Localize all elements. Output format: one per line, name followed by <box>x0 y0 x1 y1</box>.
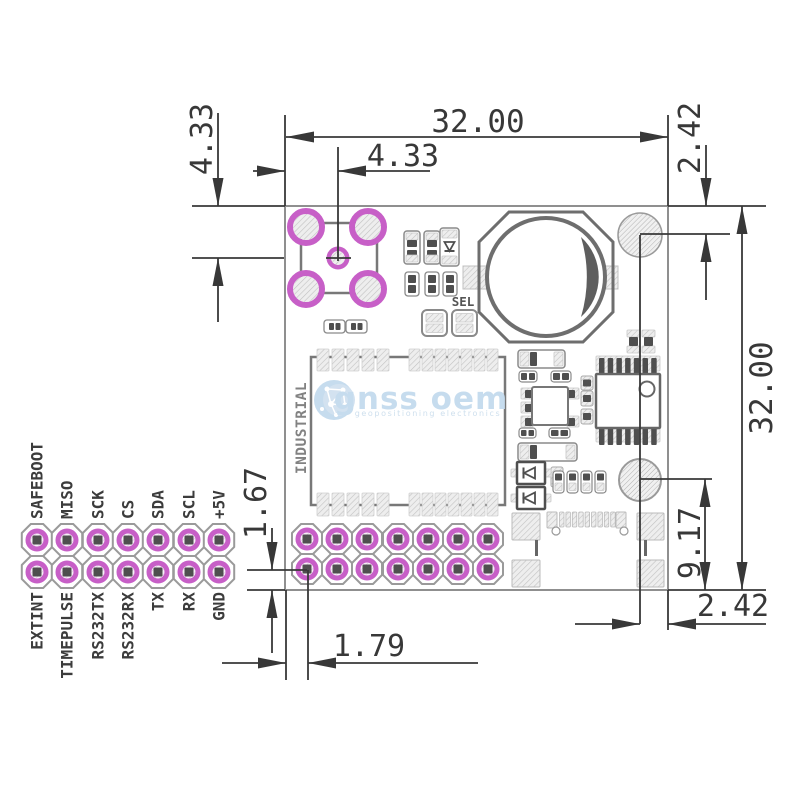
component-terminal <box>529 373 535 380</box>
component-terminal <box>583 413 591 420</box>
usb-shield-pad <box>616 512 626 528</box>
component-terminal <box>643 428 649 445</box>
component-pad <box>406 233 418 240</box>
header-pin-post <box>94 536 103 545</box>
gnss-module-outline <box>311 357 505 505</box>
header-pin-post <box>424 565 433 574</box>
component-terminal <box>625 358 631 375</box>
module-pad <box>422 349 433 371</box>
usb-locator-hole <box>552 527 560 535</box>
component-terminal <box>569 474 576 481</box>
component-terminal <box>521 430 527 436</box>
component-pad <box>456 324 473 333</box>
usb-signal-pad <box>585 512 590 527</box>
pin-label-top: SCL <box>180 490 199 519</box>
pin-label-bottom: RS232RX <box>119 592 138 660</box>
component-terminal <box>530 445 537 459</box>
component-terminal <box>644 337 653 346</box>
usb-signal-pad <box>604 512 609 527</box>
header-pin-post <box>484 565 493 574</box>
dim-hole-bottom-height: 9.17 <box>673 507 708 579</box>
component-terminal <box>599 428 605 445</box>
component-terminal <box>629 337 638 346</box>
component-pad <box>642 330 655 337</box>
module-pad <box>487 349 498 371</box>
header-pin-post <box>154 568 163 577</box>
dimension-arrow <box>701 234 712 262</box>
soic-pin1-marker <box>640 382 655 397</box>
header-pin-post <box>363 535 372 544</box>
antenna-pad-hole <box>293 214 319 240</box>
dim-antenna-x: 4.33 <box>367 139 439 174</box>
dim-board-width: 32.00 <box>431 104 524 140</box>
drawing-canvas: INDUSTRIAL SEL gnss oem geopositioning e… <box>0 0 800 800</box>
component-terminal <box>599 358 605 375</box>
component-pad <box>426 314 443 323</box>
dimension-arrow <box>286 132 314 143</box>
header-pin-post <box>394 565 403 574</box>
component-terminal <box>428 275 436 283</box>
component-terminal <box>407 240 417 247</box>
header-pin-post <box>94 568 103 577</box>
component-pad <box>597 483 604 491</box>
pin-label-bottom: EXTINT <box>28 592 47 650</box>
usb-shield-pad <box>512 513 540 540</box>
usb-signal-pad <box>592 512 597 527</box>
component-pad <box>627 346 640 353</box>
component-terminal <box>551 430 559 436</box>
component-outline <box>324 320 345 333</box>
component-pad <box>426 233 438 240</box>
dim-hole-top-offset: 2.42 <box>673 102 708 174</box>
dim-header-col: 1.79 <box>333 629 405 664</box>
component-pad <box>442 256 457 264</box>
module-pad <box>377 349 389 371</box>
dimension-arrow <box>257 166 285 177</box>
usb-signal-pad <box>611 512 616 527</box>
pin-label-bottom: TX <box>149 592 168 612</box>
component-terminal <box>651 428 657 445</box>
dim-hole-bottom-offset: 2.42 <box>697 589 769 624</box>
component-terminal <box>634 428 640 445</box>
component-pad <box>426 255 438 262</box>
component-pad <box>569 483 576 491</box>
module-pad <box>347 493 359 516</box>
component-terminal <box>530 352 537 366</box>
dimension-arrow <box>267 590 278 618</box>
antenna-pad-hole <box>293 276 319 302</box>
header-pin-post <box>215 536 224 545</box>
usb-signal-pad <box>560 512 565 527</box>
watermark-tagline: geopositioning electronics <box>355 409 502 418</box>
dimension-arrow <box>267 542 278 570</box>
module-pad <box>487 493 498 516</box>
component-pad <box>554 352 563 366</box>
component-terminal <box>428 285 436 293</box>
component-pad <box>642 346 655 353</box>
header-pin-post <box>424 535 433 544</box>
header-pin-post <box>63 568 72 577</box>
component-terminal <box>583 395 591 402</box>
dimension-arrow <box>737 206 748 234</box>
component-pad <box>456 314 473 323</box>
sot23-body <box>532 387 568 425</box>
module-pad <box>409 349 420 371</box>
usb-mark <box>644 540 647 556</box>
dimension-arrow <box>700 479 711 507</box>
component-pad <box>442 230 457 238</box>
module-pad <box>435 493 446 516</box>
header-pin-post <box>363 565 372 574</box>
component-terminal <box>608 358 614 375</box>
component-terminal <box>651 358 657 375</box>
module-pad <box>474 493 485 516</box>
diode-body <box>517 462 545 484</box>
module-pad <box>317 493 329 516</box>
pin-label-bottom: RS232TX <box>89 592 108 660</box>
component-terminal <box>427 240 437 247</box>
pin-label-bottom: TIMEPULSE <box>58 592 77 679</box>
component-pad <box>583 483 590 491</box>
dimension-arrow <box>308 658 336 669</box>
component-terminal <box>562 373 569 380</box>
module-pad <box>317 349 329 371</box>
component-terminal <box>561 430 569 436</box>
component-terminal <box>521 373 527 380</box>
component-terminal <box>625 428 631 445</box>
component-terminal <box>446 275 454 283</box>
module-pad <box>461 493 472 516</box>
component-terminal <box>336 323 341 330</box>
header-pin-post <box>454 535 463 544</box>
module-pad <box>347 349 359 371</box>
component-terminal <box>408 285 416 293</box>
pin-label-top: CS <box>119 500 138 519</box>
component-terminal <box>555 474 562 481</box>
component-pad <box>406 255 418 262</box>
circle-shape <box>320 407 324 411</box>
module-pad <box>377 493 389 516</box>
usb-shield-pad <box>637 560 664 587</box>
module-industrial-label: INDUSTRIAL <box>294 382 310 474</box>
pin-label-bottom: GND <box>210 592 229 621</box>
component-terminal <box>643 358 649 375</box>
pin-label-top: SCK <box>89 490 108 519</box>
component-terminal <box>583 474 590 481</box>
dim-antenna-y: 4.33 <box>185 103 220 175</box>
module-pad <box>422 493 433 516</box>
module-pad <box>461 349 472 371</box>
module-pad <box>448 493 459 516</box>
usb-shield-pad <box>512 560 540 587</box>
antenna-pad-hole <box>355 276 381 302</box>
module-pad <box>362 349 374 371</box>
header-pin-post <box>185 568 194 577</box>
header-pin-post <box>154 536 163 545</box>
usb-signal-pad <box>579 512 584 527</box>
usb-shield-pad <box>637 513 664 540</box>
usb-signal-pad <box>598 512 603 527</box>
dimension-arrow <box>258 658 286 669</box>
gnss-module-body <box>311 357 505 505</box>
header-pin-post <box>303 565 312 574</box>
usb-signal-pad <box>572 512 577 527</box>
header-pin-post <box>484 535 493 544</box>
header-pin-post <box>33 568 42 577</box>
component-pad <box>520 445 529 459</box>
header-pin-post <box>303 535 312 544</box>
header-pin-post <box>124 568 133 577</box>
component-terminal <box>446 285 454 293</box>
header-pin-post <box>63 536 72 545</box>
usb-shield-pad <box>547 512 557 528</box>
component-terminal <box>616 358 622 375</box>
pin-label-bottom: RX <box>180 592 199 612</box>
diode-body <box>517 487 545 509</box>
header-pin-post <box>185 536 194 545</box>
module-pad <box>448 349 459 371</box>
pin-label-top: SAFEBOOT <box>28 442 47 519</box>
component-terminal <box>351 323 356 330</box>
component-pad <box>566 445 575 459</box>
usb-mark <box>535 540 538 556</box>
component-pad <box>555 483 562 491</box>
component-terminal <box>329 323 334 330</box>
component-terminal <box>358 323 363 330</box>
component-pad <box>627 330 640 337</box>
pin-label-top: SDA <box>149 490 168 519</box>
component-terminal <box>634 358 640 375</box>
dim-header-row: 1.67 <box>239 467 274 539</box>
module-pad <box>409 493 420 516</box>
dimension-arrow <box>338 166 366 177</box>
component-pad <box>520 352 529 366</box>
module-pad <box>435 349 446 371</box>
module-pad <box>332 349 344 371</box>
dimension-arrow <box>213 178 224 206</box>
pcb-dimension-drawing: INDUSTRIAL SEL gnss oem geopositioning e… <box>0 0 800 800</box>
header-pin-post <box>33 536 42 545</box>
dimension-arrow <box>612 619 640 630</box>
dimension-arrow <box>213 258 224 286</box>
header-pin-post <box>124 536 133 545</box>
module-pad <box>362 493 374 516</box>
pin-label-top: MISO <box>58 480 77 519</box>
antenna-pad-hole <box>355 214 381 240</box>
dimension-arrow <box>668 619 696 630</box>
header-pin-post <box>394 535 403 544</box>
component-terminal <box>553 373 560 380</box>
header-pin-post <box>454 565 463 574</box>
circle-shape <box>325 387 330 392</box>
usb-locator-hole <box>620 527 628 535</box>
dimension-arrow <box>737 562 748 590</box>
component-terminal <box>608 428 614 445</box>
component-terminal <box>408 275 416 283</box>
pin-label-top: +5V <box>210 490 229 519</box>
dimension-arrow <box>640 132 668 143</box>
component-terminal <box>616 428 622 445</box>
header-pin-post <box>333 565 342 574</box>
dim-board-height: 32.00 <box>744 341 780 434</box>
component-terminal <box>597 474 604 481</box>
component-pad <box>426 324 443 333</box>
component-outline <box>346 320 367 333</box>
component-terminal <box>529 430 535 436</box>
component-terminal <box>583 380 591 387</box>
dimension-arrow <box>701 178 712 206</box>
module-pad <box>332 493 344 516</box>
header-pin-post <box>215 568 224 577</box>
usb-signal-pad <box>566 512 571 527</box>
module-pad <box>474 349 485 371</box>
header-pin-post <box>333 535 342 544</box>
